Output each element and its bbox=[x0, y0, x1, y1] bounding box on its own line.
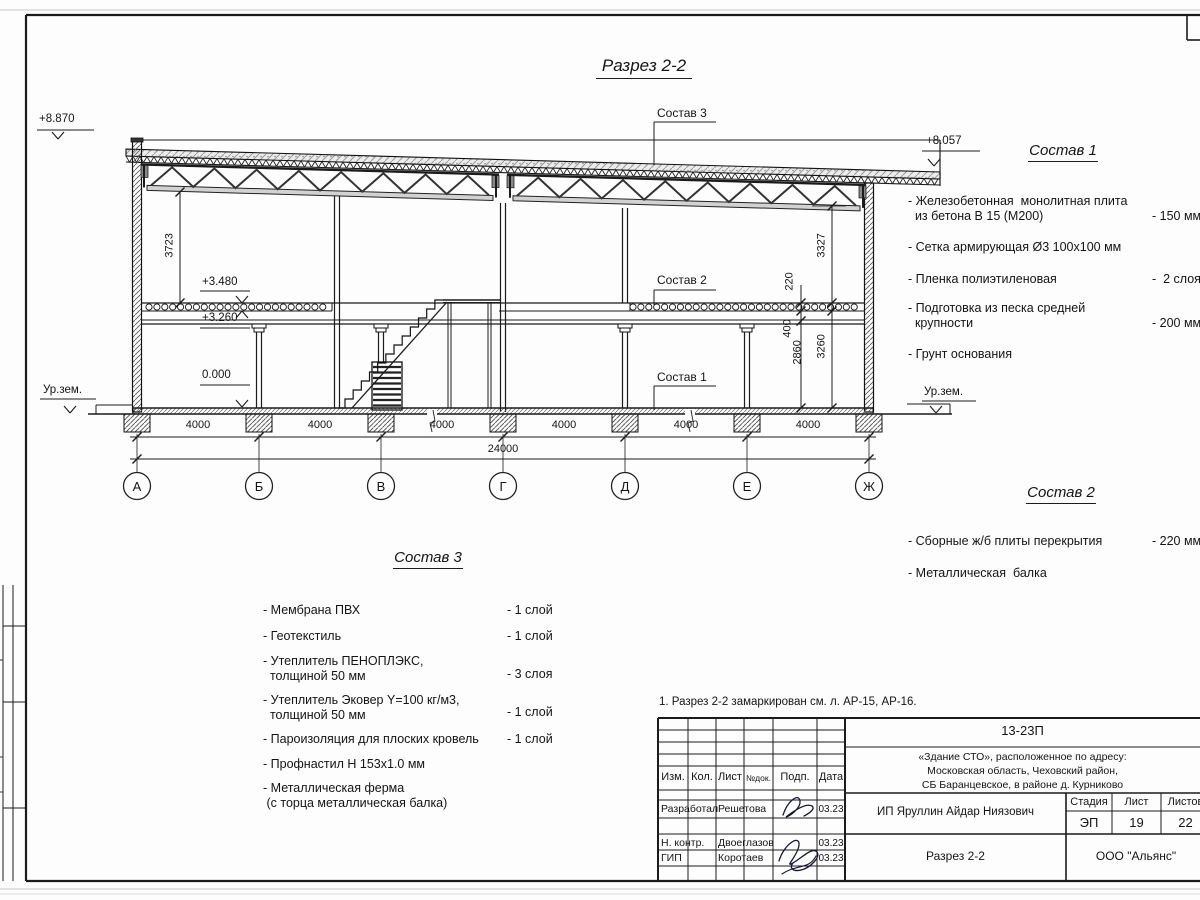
dim-bay: 4000 bbox=[778, 419, 838, 432]
elevation-roof-right: +8.057 bbox=[926, 135, 962, 148]
dim-height-right: 3327 bbox=[816, 217, 829, 273]
sostav2-item-value: - 220 мм bbox=[1152, 534, 1200, 549]
callout-sostav2: Состав 2 bbox=[657, 274, 707, 288]
titleblock-col-kol: Кол. bbox=[688, 771, 716, 784]
elevation-slab-top: +3.480 bbox=[202, 276, 238, 289]
titleblock-project: «Здание СТО», расположенное по адресу: М… bbox=[845, 750, 1200, 792]
titleblock-company: ООО "Альянс" bbox=[1066, 850, 1200, 864]
titleblock-col-izm: Изм. bbox=[658, 771, 688, 784]
dim-bay: 4000 bbox=[168, 419, 228, 432]
elevation-slab-bottom: +3.260 bbox=[202, 312, 238, 325]
axis-bubble-v: В bbox=[367, 479, 395, 494]
dim-bay: 4000 bbox=[412, 419, 472, 432]
titleblock-col-ndok: №док. bbox=[744, 774, 773, 784]
axis-bubble-zh: Ж bbox=[855, 479, 883, 494]
titleblock-col-podp: Подп. bbox=[773, 771, 817, 784]
titleblock-stage-value: ЭП bbox=[1066, 815, 1112, 830]
sostav3-item-value: - 1 слой bbox=[507, 732, 553, 747]
sostav1-item-name: - Пленка полиэтиленовая bbox=[908, 272, 1057, 287]
titleblock-object: Разрез 2-2 bbox=[845, 850, 1066, 864]
sostav3-item-name: - Металлическая ферма (с торца металличе… bbox=[263, 781, 447, 810]
sostav3-heading: Состав 3 bbox=[393, 549, 463, 569]
titleblock-row-date: 03.23 bbox=[817, 838, 845, 850]
page-title: Разрез 2-2 bbox=[596, 56, 692, 79]
axis-bubble-g: Г bbox=[489, 479, 517, 494]
sostav1-heading: Состав 1 bbox=[1028, 142, 1098, 162]
sostav3-item-value: - 3 слоя bbox=[507, 667, 552, 682]
sostav3-item-name: - Геотекстиль bbox=[263, 629, 341, 644]
dim-clear: 2860 bbox=[792, 324, 805, 380]
titleblock-row-role: Разработал bbox=[661, 803, 718, 815]
sostav1-item-name: - Сетка армирующая Ø3 100х100 мм bbox=[908, 240, 1121, 255]
titleblock-sheets-value: 22 bbox=[1161, 815, 1200, 830]
sostav1-item-value: - 200 мм bbox=[1152, 316, 1200, 331]
dim-total: 24000 bbox=[473, 443, 533, 456]
sostav3-item-value: - 1 слой bbox=[507, 705, 553, 720]
sostav3-item-value: - 1 слой bbox=[507, 603, 553, 618]
titleblock-row-name: Двоеглазов bbox=[718, 837, 774, 849]
sostav3-item-name: - Пароизоляция для плоских кровель bbox=[263, 732, 479, 747]
titleblock-row-role: Н. контр. bbox=[661, 837, 704, 849]
sostav2-item-name: - Металлическая балка bbox=[908, 566, 1047, 581]
callout-sostav3: Состав 3 bbox=[657, 107, 707, 121]
sostav1-item-name: - Железобетонная монолитная плита из бет… bbox=[908, 194, 1127, 223]
titleblock-row-name: Коротаев bbox=[718, 852, 763, 864]
axis-bubble-a: А bbox=[123, 479, 151, 494]
dim-storey: 3260 bbox=[816, 318, 829, 374]
sostav1-item-value: - 2 слоя bbox=[1152, 272, 1200, 287]
elevation-zero: 0.000 bbox=[202, 369, 231, 382]
titleblock-row-date: 03.23 bbox=[817, 804, 845, 816]
sostav1-item-value: - 150 мм bbox=[1152, 209, 1200, 224]
sostav3-item-name: - Мембрана ПВХ bbox=[263, 603, 360, 618]
titleblock-row-date: 03.23 bbox=[817, 853, 845, 865]
dim-bay: 4000 bbox=[656, 419, 716, 432]
ground-level-left: Ур.зем. bbox=[43, 384, 82, 397]
sostav1-item-name: - Подготовка из песка средней крупности bbox=[908, 301, 1085, 330]
titleblock-sheet-value: 19 bbox=[1112, 815, 1161, 830]
sostav2-item-name: - Сборные ж/б плиты перекрытия bbox=[908, 534, 1102, 549]
dim-bay: 4000 bbox=[290, 419, 350, 432]
callout-sostav1: Состав 1 bbox=[657, 371, 707, 385]
sostav3-item-name: - Профнастил Н 153х1.0 мм bbox=[263, 757, 425, 772]
titleblock-row-name: Решетова bbox=[718, 803, 766, 815]
dim-bay: 4000 bbox=[534, 419, 594, 432]
titleblock-client: ИП Яруллин Айдар Ниязович bbox=[845, 806, 1066, 819]
titleblock-sheet-label: Лист bbox=[1112, 796, 1161, 809]
titleblock-row-role: ГИП bbox=[661, 852, 682, 864]
sostav1-item-name: - Грунт основания bbox=[908, 347, 1012, 362]
sheet-note: 1. Разрез 2-2 замаркирован см. л. АР-15,… bbox=[659, 696, 917, 709]
axis-bubble-d: Д bbox=[611, 479, 639, 494]
drawing-sheet: { "drawing": { "title": "Разрез 2-2", "n… bbox=[0, 0, 1200, 900]
sostav3-item-value: - 1 слой bbox=[507, 629, 553, 644]
ground-level-right: Ур.зем. bbox=[924, 386, 963, 399]
titleblock-stage-label: Стадия bbox=[1066, 796, 1112, 809]
titleblock-sheets-label: Листов bbox=[1161, 796, 1200, 809]
titleblock-col-list: Лист bbox=[716, 771, 744, 784]
elevation-roof-left: +8.870 bbox=[39, 113, 75, 126]
axis-bubble-e: Е bbox=[733, 479, 761, 494]
titleblock-doc-number: 13-23П bbox=[845, 723, 1200, 738]
titleblock-col-data: Дата bbox=[817, 771, 845, 784]
axis-bubble-b: Б bbox=[245, 479, 273, 494]
sostav3-item-name: - Утеплитель Эковер Y=100 кг/м3, толщино… bbox=[263, 693, 459, 722]
sostav3-item-name: - Утеплитель ПЕНОПЛЭКС, толщиной 50 мм bbox=[263, 654, 423, 683]
dim-height-left: 3723 bbox=[164, 217, 177, 273]
sostav2-heading: Состав 2 bbox=[1026, 484, 1096, 504]
